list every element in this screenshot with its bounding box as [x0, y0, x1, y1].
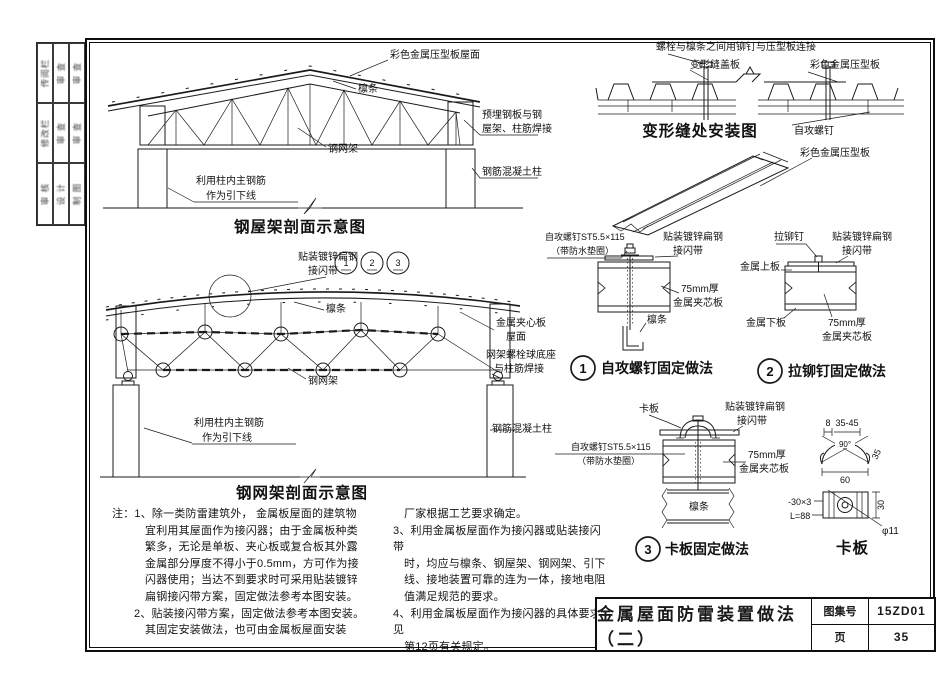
note-line: 宜利用其屋面作为接闪器；由于金属板种类: [112, 523, 397, 540]
sheet3d-linework: [613, 152, 812, 235]
label-flat-steel-1: 贴装镀锌扁钢: [298, 250, 358, 263]
note-line: 线、接地装置可靠的连为一体，接地电阻: [393, 572, 611, 589]
note-line: 时，均应与檩条、钢屋架、钢网架、引下: [393, 556, 611, 573]
detail1-caption: 自攻螺钉固定做法: [601, 360, 713, 376]
label-self-tapping-screw: 自攻螺钉: [794, 124, 834, 137]
note-line: 繁多，无论是单板、夹心板或复合板其外露: [112, 539, 397, 556]
strip-label: 审 查: [55, 62, 67, 84]
binding-strip: 传阅栏 审 查 审 查 修改栏 审 查 审 查 审 核 设 计 制 图: [36, 42, 86, 226]
label-panel-name: 金属夹芯板: [822, 330, 872, 343]
label-top-plate: 金属上板: [740, 260, 780, 273]
label-panel-name: 金属夹芯板: [673, 296, 723, 309]
truss-section-diagram: 彩色金属压型板屋面 檩条 钢网架 预埋钢板与钢 屋架、柱筋焊接 钢筋混凝土柱 利…: [88, 40, 540, 245]
strip-label: 传阅栏: [39, 59, 51, 88]
clamp-detail-caption: 卡板: [836, 538, 869, 557]
strip-cell: 制 图: [69, 163, 85, 225]
label-purlin: 檩条: [647, 313, 667, 326]
detail3-caption: 卡板固定做法: [665, 541, 749, 557]
label-roof-sheet: 彩色金属压型板屋面: [390, 48, 480, 61]
notes-column-2: 厂家根据工艺要求确定。 3、利用金属板屋面作为接闪器或贴装接闪带 时，均应与檩条…: [393, 506, 611, 655]
dim-hole: φ11: [882, 526, 899, 537]
grid-section-diagram: 1 2 3 贴装镀锌扁钢 接闪带 檩条 金属夹心板 屋面 网架螺栓球底座 与柱筋…: [88, 246, 540, 504]
label-screw-spec-1: 自攻螺钉ST5.5×115: [571, 441, 651, 452]
label-embed-plate-1: 预埋钢板与钢: [482, 108, 542, 121]
label-steel-grid: 钢网架: [328, 142, 358, 155]
truss-section-caption: 钢屋架剖面示意图: [234, 217, 366, 236]
strip-cell: 审 核: [37, 163, 53, 225]
label-sheet3d: 彩色金属压型板: [800, 146, 870, 159]
detail2-linework: [785, 256, 856, 310]
strip-label: 制 图: [71, 183, 83, 205]
label-purlin: 檩条: [358, 82, 378, 95]
label-panel-thickness: 75mm厚: [828, 317, 866, 329]
detail3-number: 3: [644, 542, 651, 557]
atlas-sheet-page: 传阅栏 审 查 审 查 修改栏 审 查 审 查 审 核 设 计 制 图: [0, 0, 950, 685]
notes-column-1: 注：1、除一类防雷建筑外， 金属板屋面的建筑物 宜利用其屋面作为接闪器；由于金属…: [112, 506, 397, 639]
strip-label: 审 查: [71, 62, 83, 84]
page-number-value: 35: [868, 625, 934, 651]
label-flat-steel-1: 贴装镀锌扁钢: [663, 230, 723, 243]
label-screw-spec-2: （带防水垫圈）: [551, 245, 614, 256]
label-purlin: 檩条: [326, 302, 346, 315]
dim-30: 30: [876, 500, 886, 510]
label-screw-spec-1: 自攻螺钉ST5.5×115: [545, 231, 625, 242]
detail1-linework: [598, 244, 670, 350]
detail2-number: 2: [766, 364, 773, 379]
strip-cell: 设 计: [53, 163, 69, 225]
dim-side-35: 35: [870, 448, 883, 461]
dim-length: L=88: [790, 511, 810, 521]
detail2-caption: 拉铆钉固定做法: [788, 363, 886, 379]
clamp-detail-diagram: 8 35-45 90° 60 35 -30×3 L=88 30 φ11 卡板: [780, 398, 932, 568]
label-purlin: 檩条: [689, 500, 709, 513]
label-flat-steel-1: 贴装镀锌扁钢: [832, 230, 892, 243]
label-bottom-plate: 金属下板: [746, 316, 786, 329]
note-line: 闪器使用；当达不到要求时可采用贴装镀锌: [112, 572, 397, 589]
label-rebar-2: 作为引下线: [206, 189, 256, 202]
joint-install-diagram: 螺栓与檩条之间用铆钉与压型板连接 变形缝盖板 彩色金属压型板 自攻螺钉 变形缝处…: [588, 36, 932, 238]
truss-linework: [103, 66, 523, 214]
detail1-number: 1: [579, 361, 586, 376]
label-cover-plate: 变形缝盖板: [690, 58, 740, 71]
label-rivet: 拉铆钉: [774, 230, 804, 243]
label-rebar-2: 作为引下线: [202, 431, 252, 444]
note-line: 4、利用金属板屋面作为接闪器的具体要求见: [393, 606, 611, 639]
label-rc-column: 钢筋混凝土柱: [482, 165, 542, 178]
callout-3: 3: [395, 258, 400, 268]
label-flat-steel-2: 接闪带: [308, 264, 338, 277]
strip-label: 审 查: [71, 122, 83, 144]
dim-35-45: 35-45: [835, 418, 858, 428]
title-bar: 金属屋面防雷装置做法（二） 图集号 15ZD01 页 35: [595, 597, 936, 652]
note-line: 2、贴装接闪带方案，固定做法参考本图安装。: [112, 606, 397, 623]
title-bar-grid: 图集号 15ZD01 页 35: [811, 599, 934, 650]
grid-section-caption: 钢网架剖面示意图: [236, 483, 368, 502]
atlas-number-value: 15ZD01: [868, 599, 934, 625]
sheet-title: 金属屋面防雷装置做法（二）: [597, 599, 811, 650]
strip-label: 修改栏: [39, 119, 51, 148]
strip-cell: 审 查: [53, 43, 69, 103]
strip-cell: 传阅栏: [37, 43, 53, 103]
note-line: 3、利用金属板屋面作为接闪器或贴装接闪带: [393, 523, 611, 556]
note-line: 第12页有关规定。: [393, 639, 611, 656]
strip-cell: 审 查: [69, 43, 85, 103]
strip-label: 设 计: [55, 183, 67, 205]
detail-1-diagram: 自攻螺钉ST5.5×115 （带防水垫圈） 贴装镀锌扁钢 接闪带 75mm厚 金…: [543, 226, 743, 396]
detail-2-diagram: 拉铆钉 贴装镀锌扁钢 接闪带 金属上板 金属下板 75mm厚 金属夹芯板 2 拉…: [736, 226, 934, 396]
label-ball-base-2: 与柱筋焊接: [494, 362, 544, 375]
dim-plate: -30×3: [788, 497, 811, 507]
dim-angle: 90°: [839, 440, 851, 449]
strip-cell: 修改栏: [37, 103, 53, 163]
strip-label: 审 查: [55, 122, 67, 144]
detail2-leaders: [776, 244, 848, 318]
label-embed-plate-2: 屋架、柱筋焊接: [482, 122, 552, 135]
label-sandwich-2: 屋面: [506, 331, 526, 343]
dim-60: 60: [840, 475, 850, 485]
label-flat-steel-1: 贴装镀锌扁钢: [725, 400, 785, 413]
label-color-sheet: 彩色金属压型板: [810, 58, 880, 71]
label-flat-steel-2: 接闪带: [842, 244, 872, 257]
note-line: 值满足规范的要求。: [393, 589, 611, 606]
label-rebar-1: 利用柱内主钢筋: [196, 174, 266, 187]
label-steel-grid: 钢网架: [308, 374, 338, 387]
note-line: 其固定安装做法，也可由金属板屋面安装: [112, 622, 397, 639]
note-line: 厂家根据工艺要求确定。: [393, 506, 611, 523]
label-sandwich-1: 金属夹心板: [496, 316, 546, 329]
strip-cell: 审 查: [53, 103, 69, 163]
page-label: 页: [812, 625, 868, 651]
label-flat-steel-2: 接闪带: [673, 244, 703, 257]
label-bolt-note: 螺栓与檩条之间用铆钉与压型板连接: [656, 40, 816, 53]
label-clamp: 卡板: [639, 402, 659, 415]
label-rebar-1: 利用柱内主钢筋: [194, 416, 264, 429]
strip-cell: 审 查: [69, 103, 85, 163]
joint-install-caption: 变形缝处安装图: [642, 121, 758, 140]
note-line: 金属部分厚度不得小于0.5mm，方可作为接: [112, 556, 397, 573]
note-line: 扁钢接闪带方案，固定做法参考本图安装。: [112, 589, 397, 606]
dim-8: 8: [825, 418, 830, 428]
label-screw-spec-2: （带防水垫圈）: [577, 455, 640, 466]
label-panel-thickness: 75mm厚: [681, 283, 719, 295]
note-line: 注：1、除一类防雷建筑外， 金属板屋面的建筑物: [112, 506, 397, 523]
strip-label: 审 核: [39, 183, 51, 205]
detail3-leaders: [555, 415, 746, 462]
atlas-number-label: 图集号: [812, 599, 868, 625]
callout-2: 2: [369, 258, 374, 268]
label-flat-steel-2: 接闪带: [737, 414, 767, 427]
